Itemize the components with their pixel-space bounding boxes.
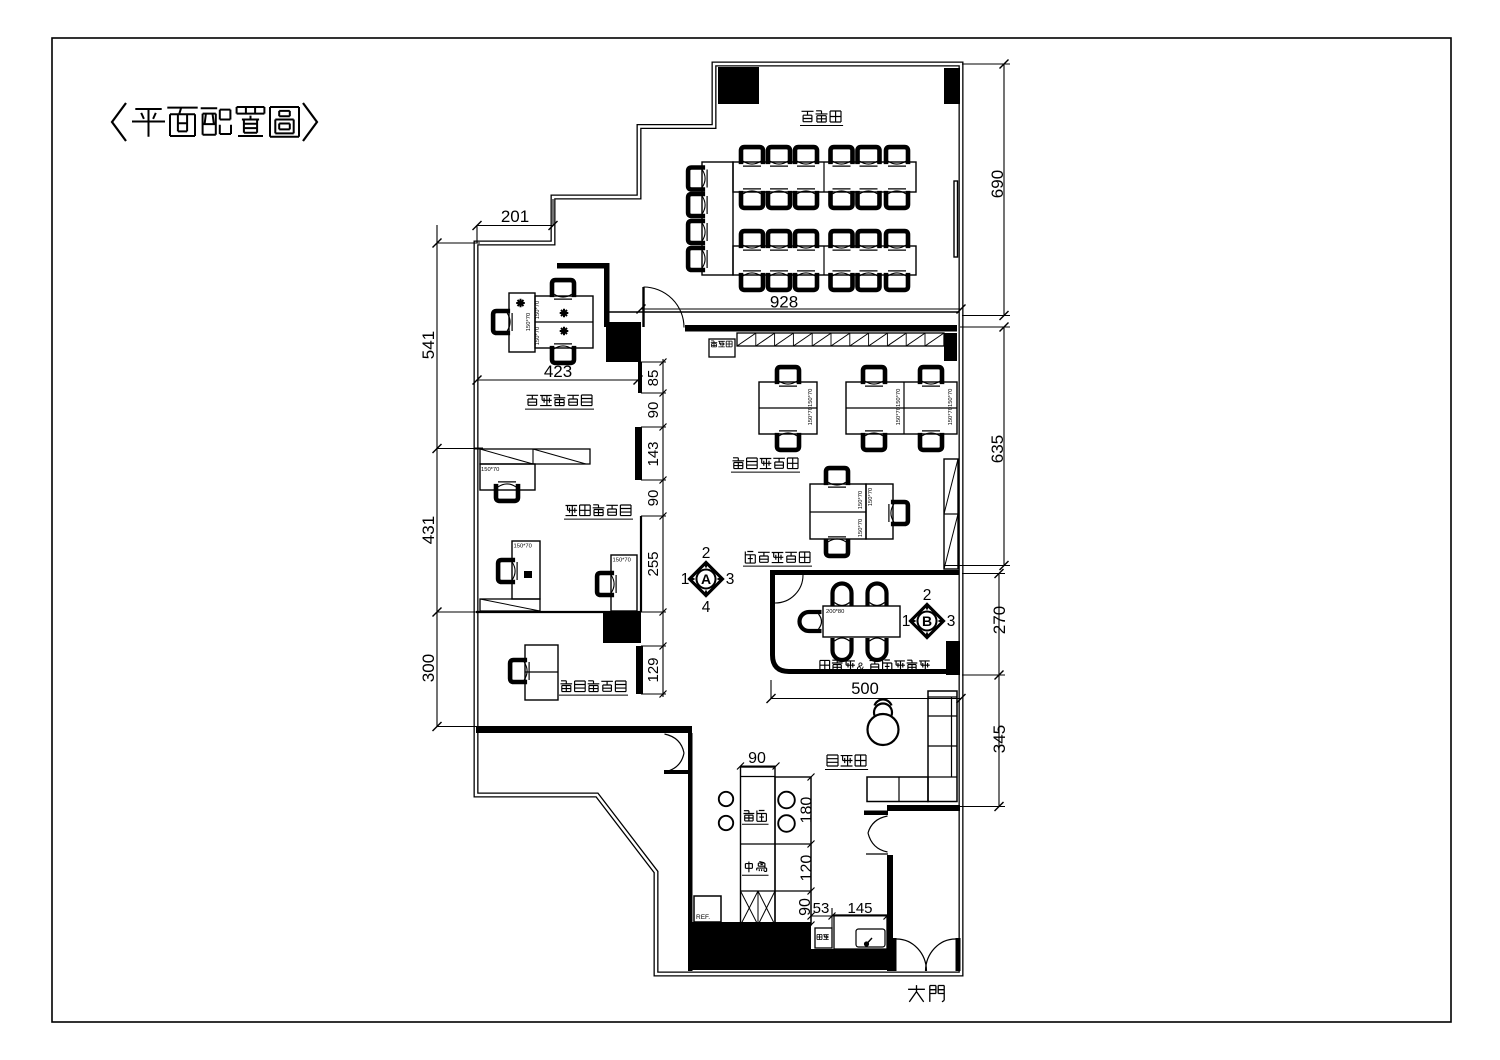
svg-text:270: 270 bbox=[990, 606, 1009, 634]
svg-text:150*70150*70: 150*70150*70 bbox=[896, 389, 902, 426]
svg-text:150*70: 150*70 bbox=[535, 327, 541, 345]
svg-text:3: 3 bbox=[947, 613, 956, 630]
svg-text:201: 201 bbox=[501, 207, 529, 226]
svg-text:A: A bbox=[701, 571, 711, 587]
svg-text:541: 541 bbox=[419, 331, 438, 359]
svg-text:2: 2 bbox=[702, 545, 711, 562]
svg-text:90: 90 bbox=[748, 750, 766, 767]
svg-text:150*70: 150*70 bbox=[613, 558, 631, 564]
svg-text:200*80: 200*80 bbox=[826, 609, 844, 615]
svg-text:150*70: 150*70 bbox=[858, 519, 864, 537]
svg-text:2: 2 bbox=[923, 587, 932, 604]
svg-text:150*70: 150*70 bbox=[858, 491, 864, 509]
svg-text:150*70: 150*70 bbox=[535, 301, 541, 319]
svg-text:423: 423 bbox=[544, 362, 572, 381]
svg-text:145: 145 bbox=[847, 900, 872, 917]
svg-text:90: 90 bbox=[645, 402, 662, 419]
svg-text:500: 500 bbox=[851, 680, 879, 698]
svg-text:&: & bbox=[857, 660, 865, 674]
svg-text:635: 635 bbox=[988, 435, 1007, 463]
svg-text:1: 1 bbox=[902, 613, 911, 630]
svg-text:143: 143 bbox=[645, 441, 662, 466]
svg-text:85: 85 bbox=[645, 370, 662, 387]
svg-text:928: 928 bbox=[770, 293, 798, 312]
svg-text:150*70: 150*70 bbox=[526, 313, 532, 331]
svg-text:150*70: 150*70 bbox=[481, 467, 499, 473]
svg-text:300: 300 bbox=[419, 654, 438, 682]
svg-text:B: B bbox=[922, 613, 932, 629]
svg-text:150*70150*70: 150*70150*70 bbox=[948, 389, 954, 426]
svg-text:255: 255 bbox=[645, 551, 662, 576]
svg-text:431: 431 bbox=[419, 516, 438, 544]
svg-text:150*70150*70: 150*70150*70 bbox=[808, 389, 814, 426]
svg-text:150*70: 150*70 bbox=[868, 488, 874, 506]
svg-text:180: 180 bbox=[799, 797, 816, 824]
svg-text:150*70: 150*70 bbox=[514, 544, 532, 550]
svg-text:53: 53 bbox=[813, 900, 830, 917]
svg-text:120: 120 bbox=[799, 855, 816, 882]
svg-text:690: 690 bbox=[988, 170, 1007, 198]
svg-text:REF.: REF. bbox=[696, 914, 710, 921]
svg-text:4: 4 bbox=[702, 599, 711, 616]
svg-text:90: 90 bbox=[645, 490, 662, 507]
svg-text:3: 3 bbox=[726, 571, 735, 588]
svg-text:1: 1 bbox=[681, 571, 690, 588]
svg-text:129: 129 bbox=[645, 657, 662, 682]
svg-text:345: 345 bbox=[990, 725, 1009, 753]
